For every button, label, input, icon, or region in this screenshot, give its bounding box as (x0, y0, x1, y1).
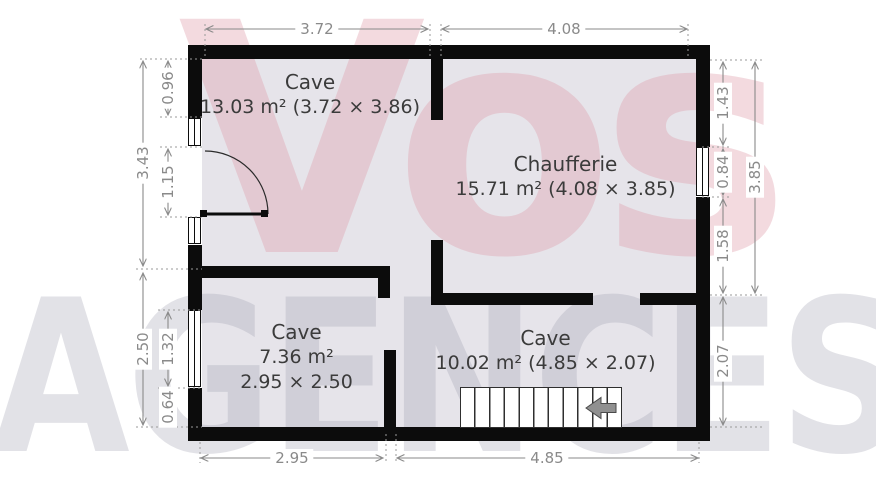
window-left-lower (188, 310, 201, 387)
dim-right-inner-2: 0.84 (714, 151, 732, 192)
room-label-cave-left: Cave 7.36 m² 2.95 × 2.50 (209, 320, 384, 395)
room-name: Cave (408, 326, 683, 351)
wall-cave-left-top (202, 266, 390, 278)
dim-left-outer-bottom: 2.50 (134, 328, 152, 369)
dim-right-outer: 3.85 (746, 156, 764, 197)
wall-chaufferie-bottom-left (431, 293, 593, 305)
wall-stub-middle (378, 266, 390, 298)
room-name: Chaufferie (428, 152, 703, 177)
wall-bottom (188, 427, 710, 441)
dim-right-inner-1: 1.43 (714, 82, 732, 123)
dim-left-inner-2: 1.15 (159, 161, 177, 202)
dim-right-inner-4: 2.07 (714, 340, 732, 381)
room-size: 2.95 × 2.50 (209, 370, 384, 395)
room-label-chaufferie: Chaufferie 15.71 m² (4.08 × 3.85) (428, 152, 703, 202)
wall-right-lower (696, 197, 710, 427)
room-area: 7.36 m² (209, 345, 384, 370)
window-left-above-door (188, 118, 201, 146)
wall-divider-bottom-rooms (384, 350, 396, 427)
room-name: Cave (209, 320, 384, 345)
door-opening (188, 147, 202, 217)
dim-bottom-left: 2.95 (270, 449, 313, 467)
dim-left-outer-top: 3.43 (134, 142, 152, 183)
wall-left-middle (188, 245, 202, 310)
room-label-cave-top: Cave 13.03 m² (3.72 × 3.86) (185, 70, 435, 120)
wall-chaufferie-left (431, 240, 443, 295)
staircase (460, 387, 622, 428)
dim-bottom-right: 4.85 (525, 449, 568, 467)
dim-left-inner-3: 1.32 (159, 328, 177, 369)
dim-top-right: 4.08 (542, 20, 585, 38)
dim-right-inner-3: 1.58 (714, 225, 732, 266)
wall-chaufferie-bottom-right (640, 293, 696, 305)
wall-top (188, 45, 710, 59)
wall-right-upper (696, 59, 710, 147)
dim-left-inner-1: 0.96 (159, 67, 177, 108)
room-label-cave-bottom: Cave 10.02 m² (4.85 × 2.07) (408, 326, 683, 376)
dim-top-left: 3.72 (295, 20, 338, 38)
room-details: 13.03 m² (3.72 × 3.86) (185, 95, 435, 120)
room-name: Cave (185, 70, 435, 95)
dim-left-inner-4: 0.64 (159, 386, 177, 427)
floor-plan: Vos AGENCES (0, 0, 876, 487)
room-details: 15.71 m² (4.08 × 3.85) (428, 177, 703, 202)
room-details: 10.02 m² (4.85 × 2.07) (408, 351, 683, 376)
wall-left-lower (188, 388, 202, 427)
window-left-below-door (188, 217, 201, 244)
